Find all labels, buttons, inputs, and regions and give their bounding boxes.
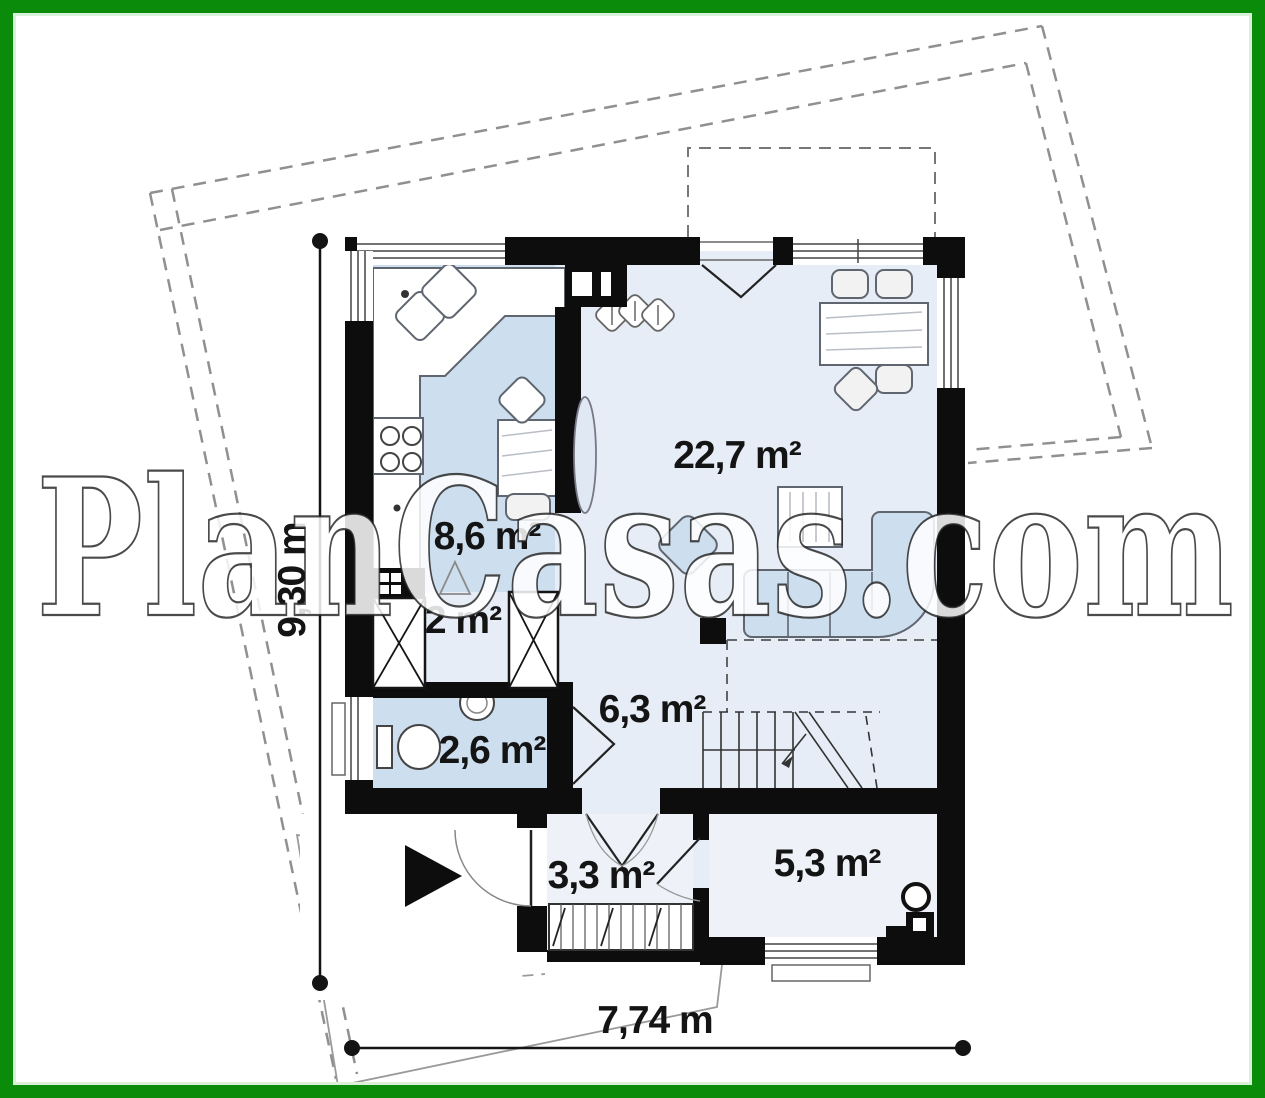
dimension-label-width: 7,74 m <box>597 999 712 1043</box>
faucet-dot <box>401 290 409 298</box>
dimension-label-height: 9,30 m <box>271 522 315 637</box>
room-label-hall: 6,3 m² <box>599 688 706 732</box>
terrace-outline <box>688 148 935 237</box>
entry-closet <box>549 904 693 950</box>
room-label-wardrobe: 2 m² <box>425 599 501 643</box>
floor-plan-drawing <box>0 0 1265 1098</box>
room-label-living: 22,7 m² <box>673 434 800 478</box>
radiator <box>574 397 596 513</box>
room-label-kitchen: 8,6 m² <box>434 515 541 559</box>
toilet-tank <box>377 726 392 768</box>
room-label-vestibule: 3,3 m² <box>548 854 655 898</box>
toilet-bowl <box>398 725 440 769</box>
fireplace-flue <box>700 618 726 644</box>
room-label-utility: 5,3 m² <box>774 842 881 886</box>
tv-cabinet <box>778 487 842 547</box>
room-label-bathroom: 2,6 m² <box>439 729 546 773</box>
floor-plan-image: 8,6 m² 22,7 m² 2 m² 2,6 m² 6,3 m² 3,3 m²… <box>0 0 1265 1098</box>
